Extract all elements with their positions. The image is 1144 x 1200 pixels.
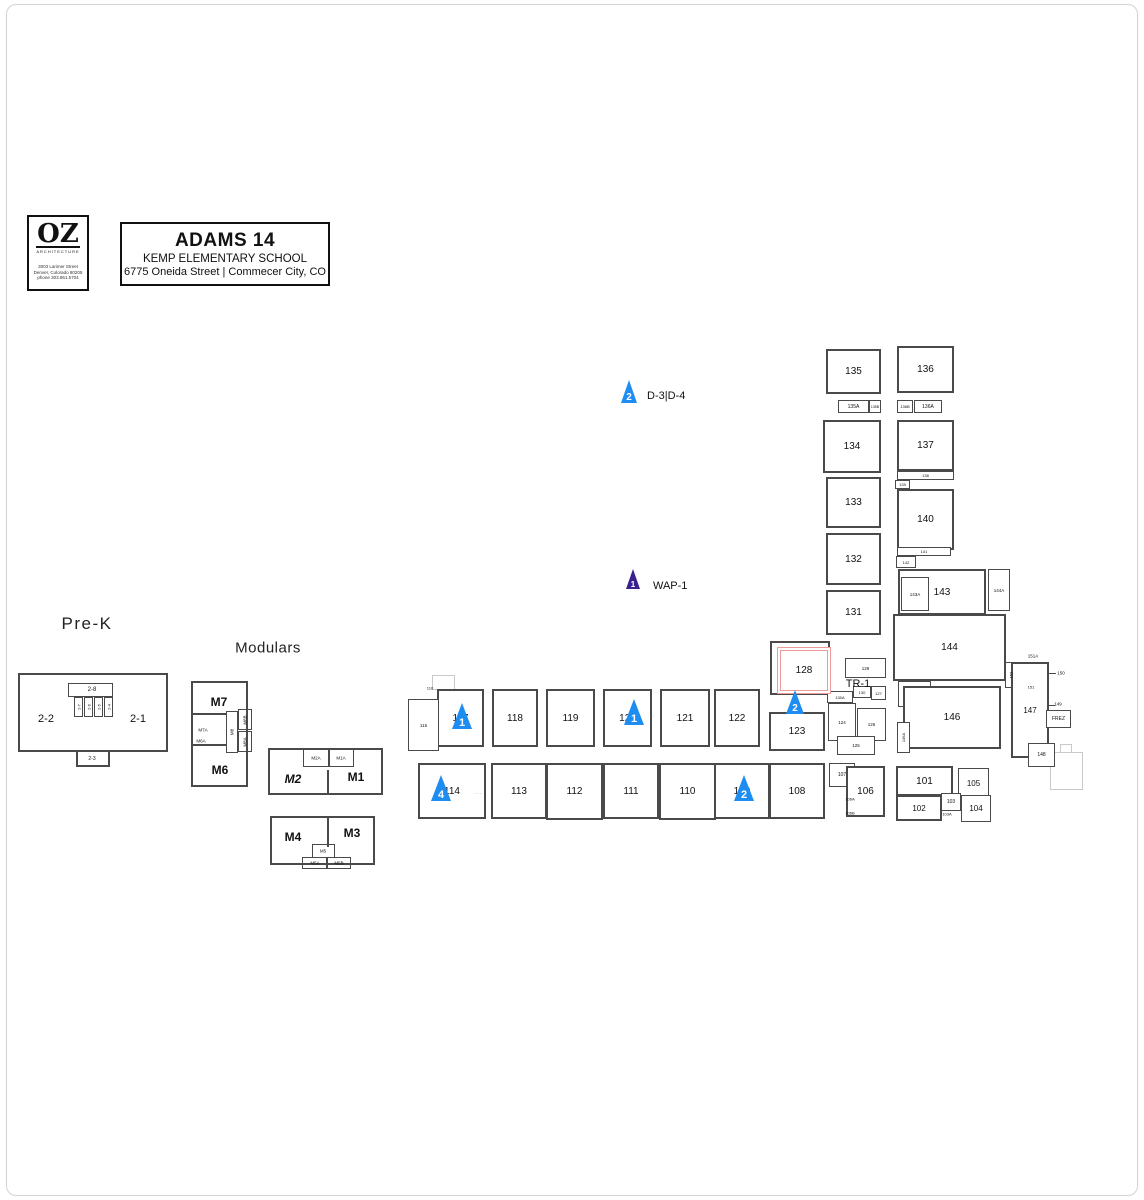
marker-label-D-3|D-4: D-3|D-4 [647, 390, 685, 402]
modular-wall [327, 770, 329, 795]
room-127: 127 [871, 686, 886, 700]
room-label: 123 [789, 726, 806, 737]
label-M1A: M1A [336, 756, 345, 761]
room-label: 136 [917, 364, 934, 375]
room-label: 137 [917, 440, 934, 451]
label-106A: 106A [845, 797, 854, 802]
room-label: 132 [845, 554, 862, 565]
label-M5A: M5A [310, 861, 319, 866]
label-M6A: M6A [196, 739, 205, 744]
label-116: 116 [427, 686, 433, 691]
room-label: 124 [838, 720, 846, 725]
label----: - - - [475, 791, 481, 796]
label-M5: M5 [320, 849, 326, 854]
label-M5B: M5B [334, 861, 343, 866]
marker-num-2[interactable]: 2 [734, 775, 755, 801]
room-146A: 146A [897, 722, 910, 753]
room-label: 139 [899, 482, 906, 487]
label-M4: M4 [285, 830, 302, 844]
modular-wall [191, 713, 227, 715]
marker-number: 2 [786, 704, 805, 714]
room-135: 135 [826, 349, 881, 394]
room-label: 128 [796, 665, 813, 676]
marker-number: 2 [734, 790, 755, 801]
room-136B: 136B [897, 400, 913, 413]
marker-D-3|D-4[interactable]: 2 [621, 380, 638, 403]
room-140: 140 [897, 489, 954, 550]
room-135A: 135A [838, 400, 869, 413]
room-label: 138 [922, 473, 929, 478]
room-136: 136 [897, 346, 954, 393]
room-134: 134 [823, 420, 881, 473]
marker-number: 2 [621, 393, 638, 403]
room-label: 102 [912, 804, 925, 813]
room-label: 110 [680, 786, 696, 797]
marker-label-WAP-1: WAP-1 [653, 580, 687, 592]
label-2-8: 2-8 [88, 687, 97, 693]
label-2-7: 2-7 [77, 704, 82, 710]
room-146: 146 [903, 686, 1001, 749]
room-label: 122 [729, 713, 746, 724]
modular-wall [327, 817, 329, 847]
label-106B: 106B [845, 811, 854, 816]
marker-num-4[interactable]: 4 [431, 775, 452, 801]
floorplan-layer: 135136135A135B136B136A134137138139133140… [0, 0, 1144, 1200]
marker-number: 4 [431, 790, 452, 801]
room-label: 147 [1023, 706, 1036, 715]
marker-num-1[interactable]: 1 [452, 703, 473, 729]
room-label: 134 [844, 441, 861, 452]
room-139: 139 [895, 480, 910, 489]
room-label: 121 [677, 713, 694, 724]
label-M6: M6 [212, 763, 229, 777]
label-149: 149 [1054, 702, 1062, 707]
highlight-room-128: 128 [777, 647, 831, 694]
room-143A: 143A [901, 577, 929, 611]
label-M7A: M7A [198, 728, 207, 733]
room-label: 131 [845, 607, 862, 618]
room-label: 104 [969, 804, 982, 813]
label-2-1: 2-1 [130, 713, 146, 725]
room-label: 135A [848, 404, 860, 410]
room-133: 133 [826, 477, 881, 528]
label-151A: 151A [1028, 654, 1039, 659]
room-137: 137 [897, 420, 954, 471]
room-label: 143 [934, 587, 951, 598]
room-label: 141 [921, 549, 928, 554]
room-115: 115 [408, 699, 439, 751]
room-label: 136A [922, 404, 934, 410]
marker-num-2[interactable]: 2 [786, 690, 805, 714]
label-152: 152 [1009, 672, 1014, 679]
room-138: 138 [897, 471, 954, 480]
room-136A: 136A [914, 400, 942, 413]
room-label: 101 [916, 776, 933, 787]
marker-num-1[interactable]: 1 [624, 699, 645, 725]
room-label: 130A [835, 695, 844, 700]
label-M8B: M8B [243, 715, 248, 724]
room-label: 133 [845, 497, 862, 508]
room-label: 119 [563, 713, 579, 724]
room-135B: 135B [869, 400, 881, 413]
marker-WAP-1[interactable]: 1 [626, 569, 641, 589]
room-148: 148 [1028, 743, 1055, 767]
label-M8: M8 [230, 729, 235, 735]
label-M2: M2 [285, 772, 302, 786]
label-M2A: M2A [311, 756, 320, 761]
room-label: 126 [868, 722, 876, 727]
floorplan-page: OZ ARCHITECTURE 3003 Larimer Street Denv… [0, 0, 1144, 1200]
room-label: 125 [852, 743, 860, 748]
entry-vestibule [432, 675, 455, 690]
label-M1: M1 [348, 770, 365, 784]
room-label: 140 [917, 514, 934, 525]
room-131: 131 [826, 590, 881, 635]
room-label: 136B [900, 404, 909, 409]
room-label: 107 [838, 772, 846, 778]
room-label: 130 [859, 690, 866, 695]
room-label: 148 [1037, 752, 1045, 758]
room-118: 118 [492, 689, 538, 747]
room-label: 106 [857, 786, 874, 797]
marker-number: 1 [624, 714, 645, 725]
label-2-4: 2-4 [107, 704, 112, 710]
label-M8A: M8A [243, 737, 248, 746]
room-112: 112 [546, 763, 603, 820]
room-label: 144 [941, 642, 958, 653]
room-label: 146A [901, 733, 906, 742]
room-label: 118 [507, 713, 523, 724]
room-label: 146 [944, 712, 961, 723]
room-121: 121 [660, 689, 710, 747]
room-101: 101 [896, 766, 953, 796]
room-144A: 144A [988, 569, 1010, 611]
room-104: 104 [961, 795, 991, 822]
room-label: 105 [967, 779, 980, 788]
room-110: 110 [659, 763, 716, 820]
marker-number: 1 [452, 718, 473, 729]
room-label: 113 [511, 786, 527, 797]
room-label: 144A [994, 588, 1005, 593]
room-122: 122 [714, 689, 760, 747]
label-2-3: 2-3 [88, 756, 95, 762]
room-label: 103 [947, 799, 955, 805]
future-building-bump [1060, 744, 1072, 753]
room-132: 132 [826, 533, 881, 585]
room-label: 111 [623, 786, 638, 797]
label-151: 151 [1028, 685, 1035, 690]
room-label: 108 [789, 786, 806, 797]
room-label: 135B [871, 405, 879, 409]
room-label: 142 [903, 560, 910, 565]
room-label: FREZ [1052, 716, 1065, 722]
room-label: 135 [845, 366, 862, 377]
modular-wall [191, 744, 227, 746]
label-TR-1: TR-1 [846, 678, 870, 690]
room-102: 102 [896, 795, 942, 821]
room-label: 129 [862, 666, 870, 671]
room-label: 143A [910, 592, 921, 597]
label-2-2: 2-2 [38, 713, 54, 725]
room-105: 105 [958, 768, 989, 798]
label-M3: M3 [344, 826, 361, 840]
marker-number: 1 [626, 581, 641, 589]
label-103A: 103A [942, 812, 951, 817]
room-label: 127 [875, 691, 882, 696]
room-111: 111 [603, 763, 659, 819]
room-113: 113 [491, 763, 547, 819]
room-label: 112 [567, 786, 583, 797]
room-129: 129 [845, 658, 886, 678]
room-106: 106 [846, 766, 885, 817]
room-125: 125 [837, 736, 875, 755]
room-108: 108 [769, 763, 825, 819]
label-2-6: 2-6 [87, 704, 92, 710]
room-123: 123 [769, 712, 825, 751]
label-150: 150 [1057, 671, 1065, 676]
label-M7: M7 [211, 695, 228, 709]
room-FREZ: FREZ [1046, 710, 1071, 728]
label-2-5: 2-5 [97, 704, 102, 710]
room-144: 144 [893, 614, 1006, 681]
room-label: 115 [420, 723, 427, 728]
room-141: 141 [897, 547, 951, 556]
room-103: 103 [941, 793, 961, 811]
room-142: 142 [896, 556, 916, 568]
label---: - - [650, 714, 654, 719]
room-119: 119 [546, 689, 595, 747]
